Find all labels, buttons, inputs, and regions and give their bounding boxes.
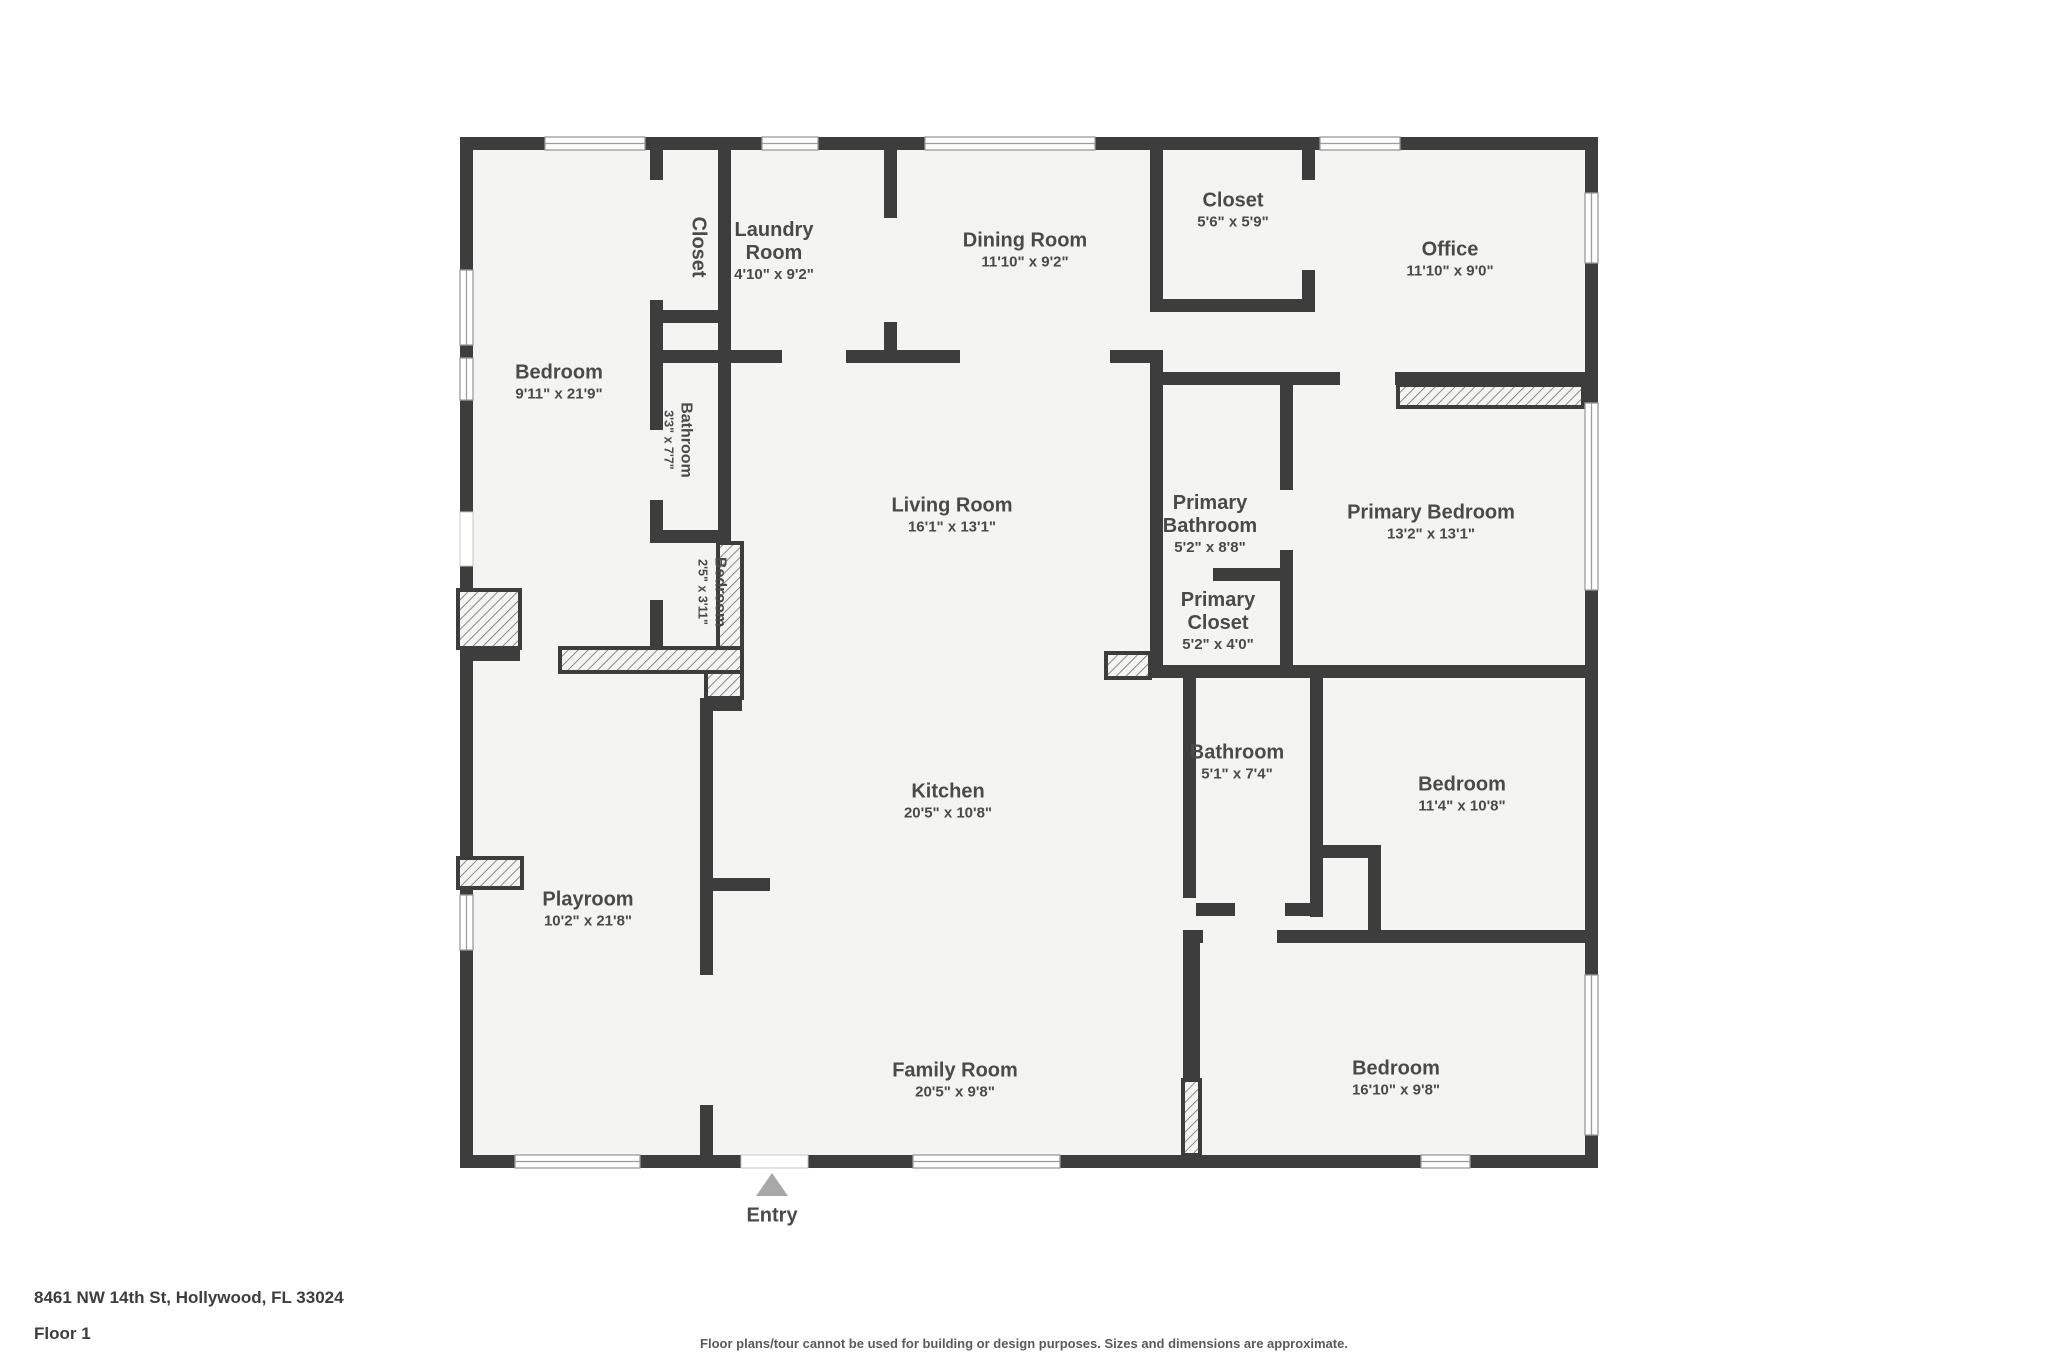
room-title: Closet — [1197, 190, 1268, 213]
room-dimensions: 11'10" x 9'2" — [963, 253, 1087, 273]
room-title: Bedroom — [515, 362, 603, 385]
disclaimer-text: Floor plans/tour cannot be used for buil… — [0, 1336, 2048, 1351]
room-title: Dining Room — [963, 230, 1087, 253]
room-title: Bathroom — [1190, 742, 1284, 765]
room-label-bathroom-1: Bathroom3'3" x 7'7" — [661, 402, 696, 478]
room-label-primary-bathroom: Primary Bathroom5'2" x 8'8" — [1140, 492, 1280, 558]
room-label-primary-closet: Primary Closet5'2" x 4'0" — [1158, 589, 1278, 655]
room-title: Bathroom — [677, 402, 696, 478]
room-dimensions: 5'2" x 8'8" — [1140, 538, 1280, 558]
room-dimensions: 5'2" x 4'0" — [1158, 635, 1278, 655]
bedroom-wall-hatch — [1183, 1080, 1200, 1155]
room-dimensions: 16'1" x 13'1" — [891, 518, 1012, 538]
room-dimensions: 5'1" x 7'4" — [1190, 765, 1284, 785]
room-title: Closet — [687, 216, 710, 277]
address-text: 8461 NW 14th St, Hollywood, FL 33024 — [34, 1288, 344, 1308]
room-label-bedroom-4: Bedroom16'10" x 9'8" — [1352, 1058, 1440, 1101]
room-label-bedroom-3: Bedroom11'4" x 10'8" — [1418, 774, 1506, 817]
entry-label: Entry — [746, 1205, 797, 1228]
room-label-primary-bedroom: Primary Bedroom13'2" x 13'1" — [1347, 502, 1515, 545]
room-label-kitchen: Kitchen20'5" x 10'8" — [904, 781, 992, 824]
room-label-dining-room: Dining Room11'10" x 9'2" — [963, 230, 1087, 273]
room-dimensions: 2'5" x 3'11" — [695, 557, 711, 627]
entry-opening — [741, 1155, 808, 1168]
room-label-laundry-room: Laundry Room4'10" x 9'2" — [719, 219, 829, 285]
room-label-bathroom-2: Bathroom5'1" x 7'4" — [1190, 742, 1284, 785]
room-dimensions: 13'2" x 13'1" — [1347, 525, 1515, 545]
floorplan-page: Bedroom9'11" x 21'9"ClosetLaundry Room4'… — [0, 0, 2048, 1365]
playroom-wall-hatch — [458, 858, 522, 888]
room-label-closet-2: Closet5'6" x 5'9" — [1197, 190, 1268, 233]
room-label-playroom: Playroom10'2" x 21'8" — [542, 889, 633, 932]
room-dimensions: 11'10" x 9'0" — [1406, 262, 1493, 282]
primary-closet-hatch — [1106, 653, 1150, 678]
room-title: Primary Bedroom — [1347, 502, 1515, 525]
room-dimensions: 3'3" x 7'7" — [661, 402, 677, 478]
office-wardrobe-hatch — [1398, 385, 1583, 407]
room-dimensions: 20'5" x 10'8" — [904, 804, 992, 824]
room-title: Bedroom — [711, 557, 730, 627]
entry-marker-icon — [756, 1173, 788, 1196]
room-label-bedroom-2: Bedroom2'5" x 3'11" — [695, 557, 730, 627]
room-dimensions: 16'10" x 9'8" — [1352, 1081, 1440, 1101]
room-title: Primary Bathroom — [1140, 492, 1280, 538]
wardrobe-hatch-band — [560, 648, 742, 672]
room-label-living-room: Living Room16'1" x 13'1" — [891, 495, 1012, 538]
room-dimensions: 9'11" x 21'9" — [515, 385, 603, 405]
room-title: Primary Closet — [1158, 589, 1278, 635]
fireplace-hatch — [458, 590, 520, 648]
room-label-office: Office11'10" x 9'0" — [1406, 239, 1493, 282]
wardrobe-hatch-corner — [706, 672, 742, 698]
room-label-family-room: Family Room20'5" x 9'8" — [892, 1060, 1018, 1103]
room-dimensions: 5'6" x 5'9" — [1197, 213, 1268, 233]
room-title: Office — [1406, 239, 1493, 262]
room-title: Bedroom — [1352, 1058, 1440, 1081]
room-dimensions: 11'4" x 10'8" — [1418, 797, 1506, 817]
side-opening — [460, 512, 473, 566]
room-dimensions: 4'10" x 9'2" — [719, 265, 829, 285]
room-title: Laundry Room — [719, 219, 829, 265]
room-label-closet-1: Closet — [687, 216, 710, 277]
floorplan-drawing — [0, 0, 2048, 1365]
room-title: Playroom — [542, 889, 633, 912]
room-dimensions: 20'5" x 9'8" — [892, 1083, 1018, 1103]
room-title: Kitchen — [904, 781, 992, 804]
room-label-bedroom-1: Bedroom9'11" x 21'9" — [515, 362, 603, 405]
room-title: Family Room — [892, 1060, 1018, 1083]
room-dimensions: 10'2" x 21'8" — [542, 912, 633, 932]
room-title: Bedroom — [1418, 774, 1506, 797]
room-title: Living Room — [891, 495, 1012, 518]
